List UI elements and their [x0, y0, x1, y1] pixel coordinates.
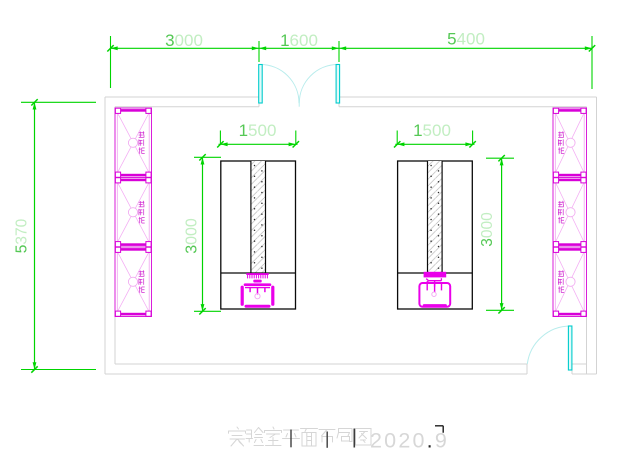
svg-text:3000: 3000	[184, 218, 201, 254]
svg-text:3000: 3000	[479, 212, 496, 247]
svg-text:5400: 5400	[447, 30, 485, 49]
svg-text:2020.9: 2020.9	[370, 429, 449, 453]
svg-text:1500: 1500	[239, 121, 277, 140]
svg-text:1600: 1600	[280, 31, 318, 50]
svg-text:5370: 5370	[14, 218, 31, 253]
svg-text:3000: 3000	[165, 31, 203, 50]
svg-text:1500: 1500	[413, 121, 451, 140]
